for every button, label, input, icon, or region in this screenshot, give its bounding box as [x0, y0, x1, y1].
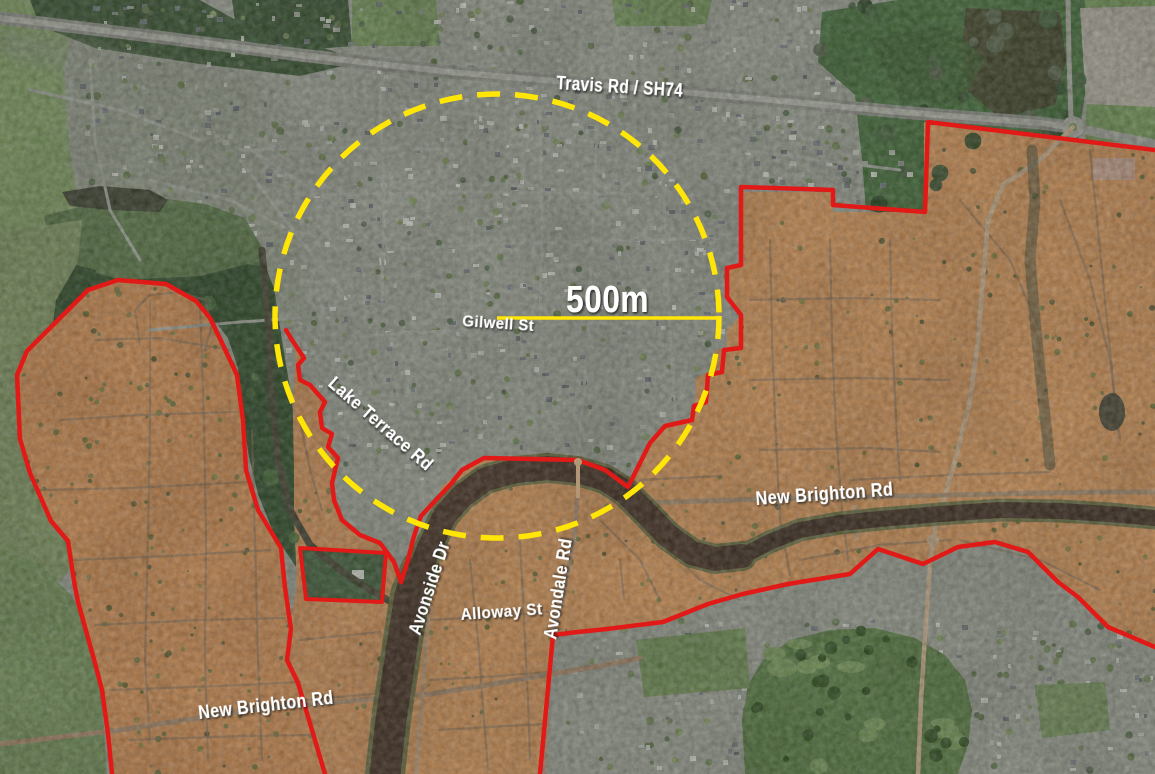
- svg-text:500m: 500m: [566, 279, 649, 321]
